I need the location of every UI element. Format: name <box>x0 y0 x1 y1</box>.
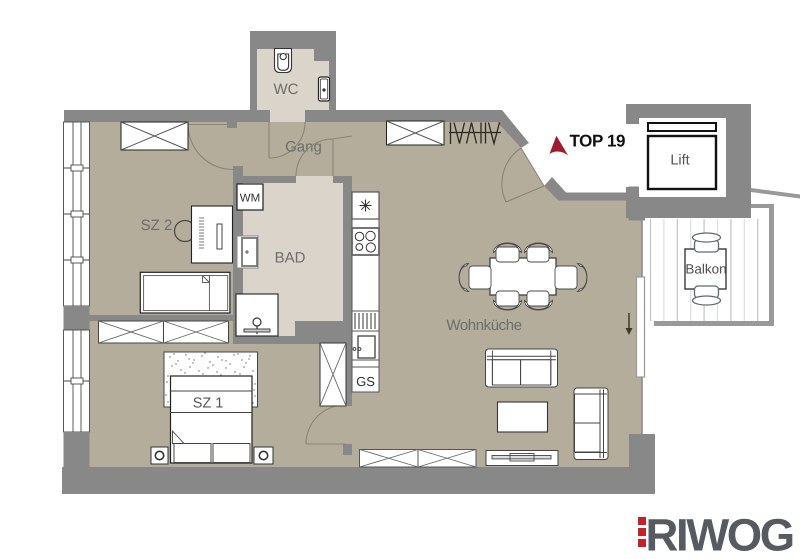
svg-text:SZ 2: SZ 2 <box>141 217 173 234</box>
svg-text:RIWOG: RIWOG <box>646 510 793 559</box>
svg-text:Wohnküche: Wohnküche <box>446 317 521 334</box>
svg-text:GS: GS <box>356 374 375 389</box>
svg-text:BAD: BAD <box>275 250 306 267</box>
svg-text:Lift: Lift <box>670 153 689 169</box>
svg-text:TOP 19: TOP 19 <box>570 132 626 151</box>
svg-text:Balkon: Balkon <box>685 262 726 277</box>
svg-text:WM: WM <box>240 193 260 205</box>
svg-text:WC: WC <box>274 81 299 98</box>
svg-text:SZ 1: SZ 1 <box>193 396 224 412</box>
